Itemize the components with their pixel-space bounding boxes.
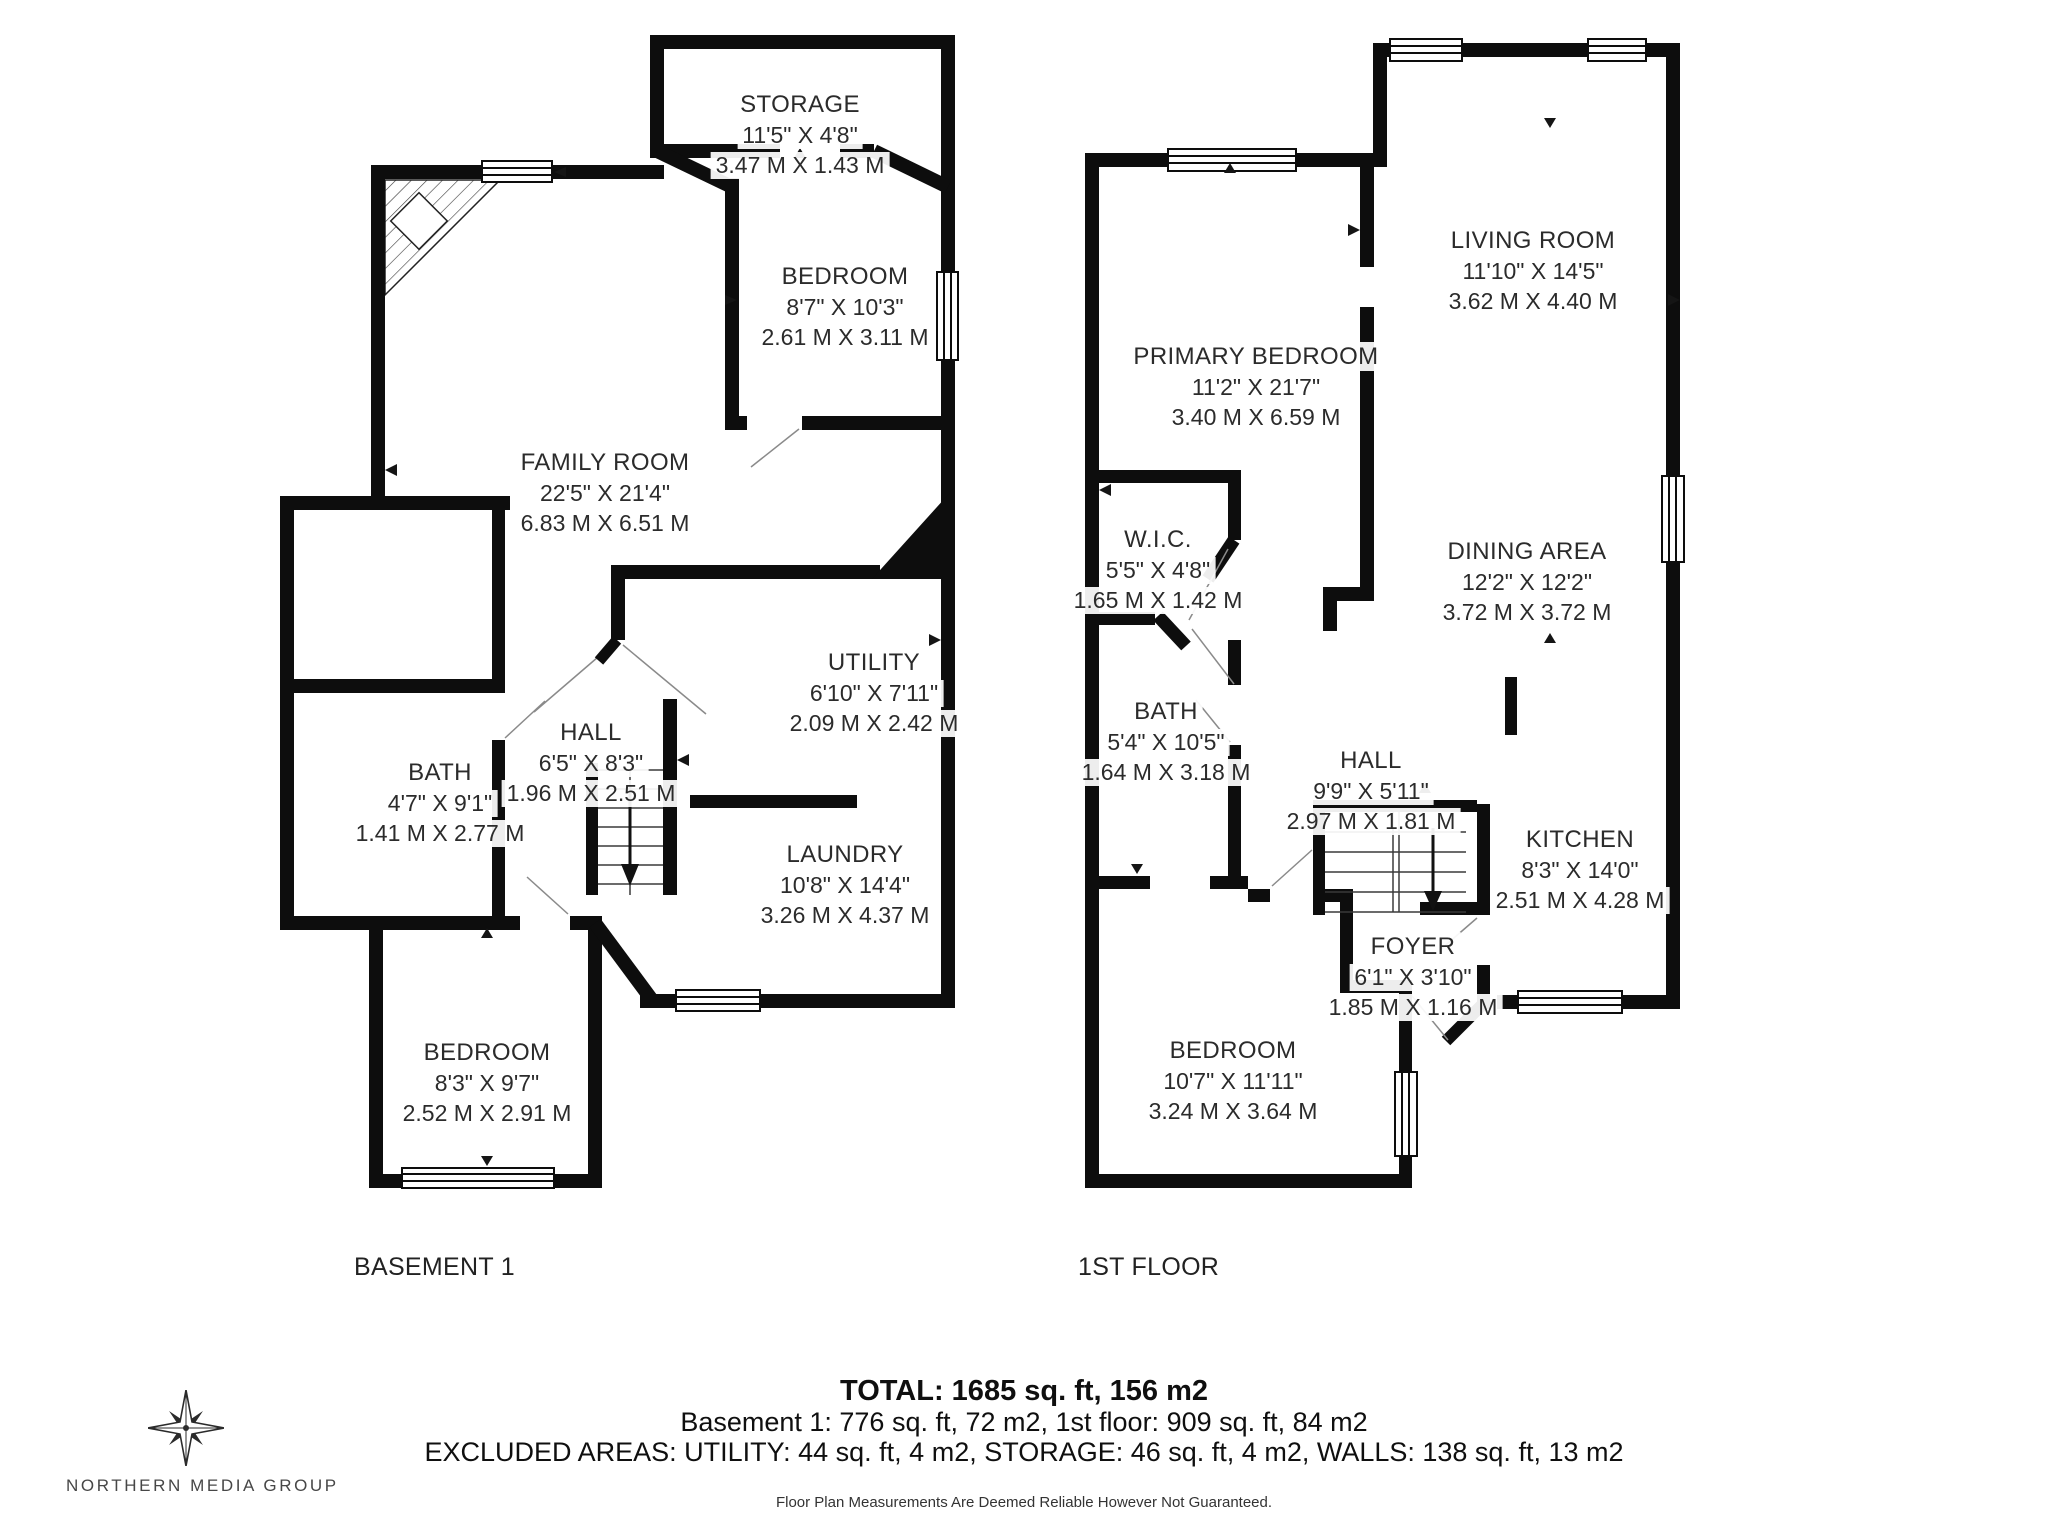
excluded-areas-text: EXCLUDED AREAS: UTILITY: 44 sq. ft, 4 m2… bbox=[0, 1437, 2048, 1467]
room-label-family-room: FAMILY ROOM 22'5" X 21'4" 6.83 M X 6.51 … bbox=[516, 448, 695, 540]
disclaimer-text: Floor Plan Measurements Are Deemed Relia… bbox=[0, 1494, 2048, 1511]
room-label-storage: STORAGE 11'5" X 4'8" 3.47 M X 1.43 M bbox=[711, 90, 890, 182]
logo-text: NORTHERN MEDIA GROUP bbox=[66, 1476, 306, 1496]
room-label-wic: W.I.C. 5'5" X 4'8" 1.65 M X 1.42 M bbox=[1069, 525, 1248, 617]
room-label-laundry: LAUNDRY 10'8" X 14'4" 3.26 M X 4.37 M bbox=[756, 840, 935, 932]
compass-rose-icon bbox=[148, 1390, 224, 1466]
room-label-bath-first: BATH 5'4" X 10'5" 1.64 M X 3.18 M bbox=[1077, 697, 1256, 789]
room-label-hall-first: HALL 9'9" X 5'11" 2.97 M X 1.81 M bbox=[1282, 746, 1461, 838]
floor-title-first-floor: 1ST FLOOR bbox=[1078, 1253, 1219, 1282]
basement-floorplan bbox=[280, 35, 958, 1188]
room-label-bedroom-basement-top: BEDROOM 8'7" X 10'3" 2.61 M X 3.11 M bbox=[756, 262, 933, 354]
room-label-living-room: LIVING ROOM 11'10" X 14'5" 3.62 M X 4.40… bbox=[1444, 226, 1623, 318]
room-label-bedroom-basement-bottom: BEDROOM 8'3" X 9'7" 2.52 M X 2.91 M bbox=[398, 1038, 577, 1130]
room-label-utility: UTILITY 6'10" X 7'11" 2.09 M X 2.42 M bbox=[785, 648, 964, 740]
room-label-dining-area: DINING AREA 12'2" X 12'2" 3.72 M X 3.72 … bbox=[1438, 537, 1617, 629]
room-label-kitchen: KITCHEN 8'3" X 14'0" 2.51 M X 4.28 M bbox=[1491, 825, 1670, 917]
room-label-primary-bedroom: PRIMARY BEDROOM 11'2" X 21'7" 3.40 M X 6… bbox=[1128, 342, 1383, 434]
room-label-bedroom-first: BEDROOM 10'7" X 11'11" 3.24 M X 3.64 M bbox=[1144, 1036, 1323, 1128]
room-label-foyer: FOYER 6'1" X 3'10" 1.85 M X 1.16 M bbox=[1324, 932, 1503, 1024]
hatched-corner bbox=[385, 180, 500, 295]
floorplan-drawing bbox=[0, 0, 2048, 1536]
company-logo: NORTHERN MEDIA GROUP bbox=[66, 1390, 306, 1496]
room-label-bath-basement: BATH 4'7" X 9'1" 1.41 M X 2.77 M bbox=[351, 758, 530, 850]
area-summary: TOTAL: 1685 sq. ft, 156 m2 Basement 1: 7… bbox=[0, 1376, 2048, 1467]
floor-plan-page: { "colors": { "wall": "#0d0d0d", "text":… bbox=[0, 0, 2048, 1536]
floor-areas-text: Basement 1: 776 sq. ft, 72 m2, 1st floor… bbox=[0, 1407, 2048, 1437]
floor-title-basement: BASEMENT 1 bbox=[354, 1253, 515, 1282]
total-area-text: TOTAL: 1685 sq. ft, 156 m2 bbox=[0, 1376, 2048, 1407]
